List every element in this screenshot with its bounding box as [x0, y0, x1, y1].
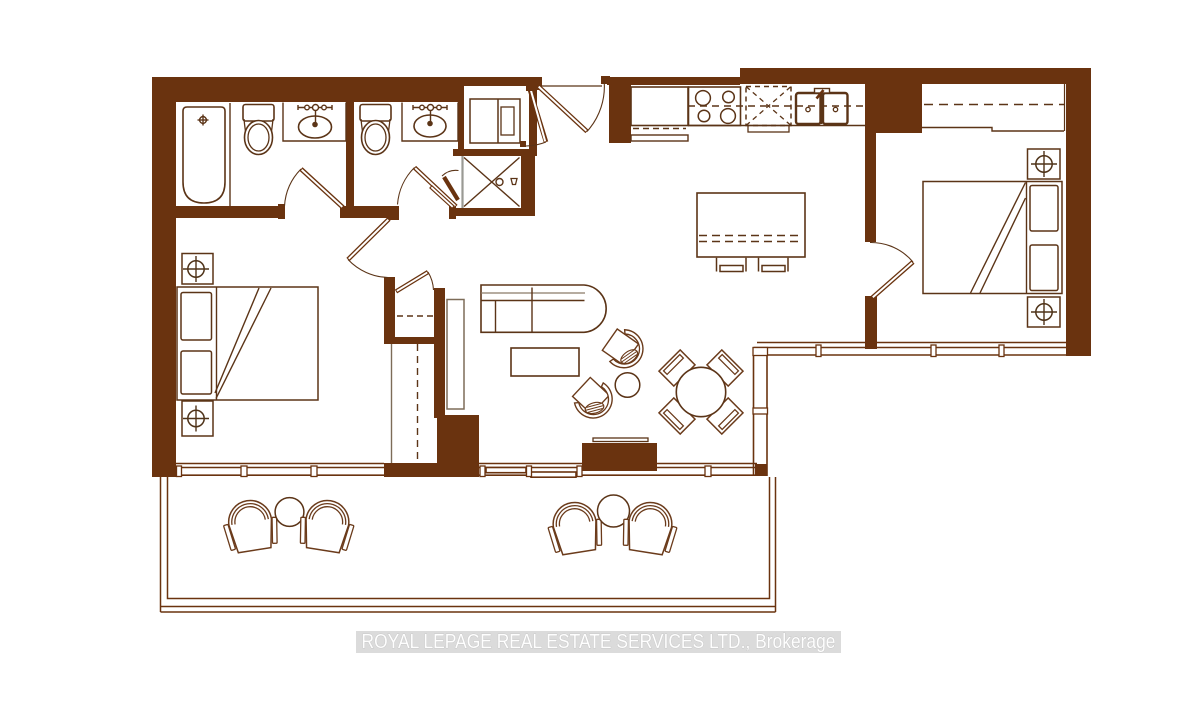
svg-text:ROYAL LEPAGE REAL ESTATE SERVI: ROYAL LEPAGE REAL ESTATE SERVICES LTD., …: [362, 631, 836, 653]
